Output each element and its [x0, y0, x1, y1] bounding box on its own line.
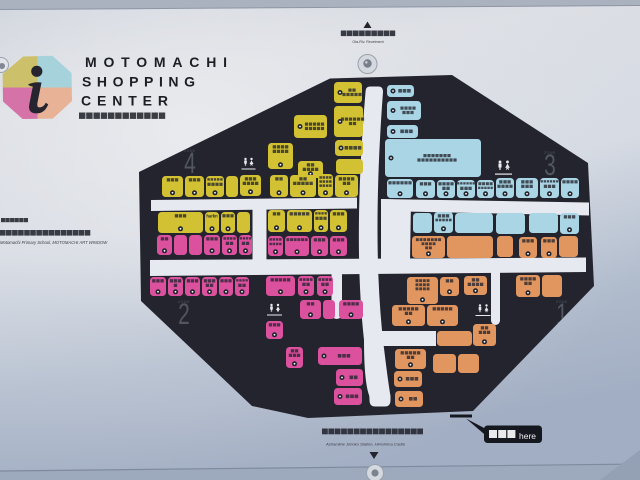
- svg-text:ZONE: ZONE: [184, 149, 196, 153]
- svg-text:Motomachi Primary School, MOTO: Motomachi Primary School, MOTOMACHI ART …: [0, 240, 108, 245]
- svg-text:MOTOMACHI: MOTOMACHI: [85, 54, 227, 70]
- svg-text:ZONE: ZONE: [556, 300, 568, 304]
- svg-text:Ota-Riv. Revetment: Ota-Riv. Revetment: [352, 40, 383, 44]
- svg-text:Astramline Johoku Station, Hir: Astramline Johoku Station, Hiroshima Cas…: [325, 442, 406, 447]
- svg-text:ZONE: ZONE: [544, 151, 556, 155]
- svg-text:ZONE: ZONE: [178, 300, 190, 304]
- svg-text:here: here: [519, 431, 536, 441]
- svg-text:harkn: harkn: [206, 214, 218, 219]
